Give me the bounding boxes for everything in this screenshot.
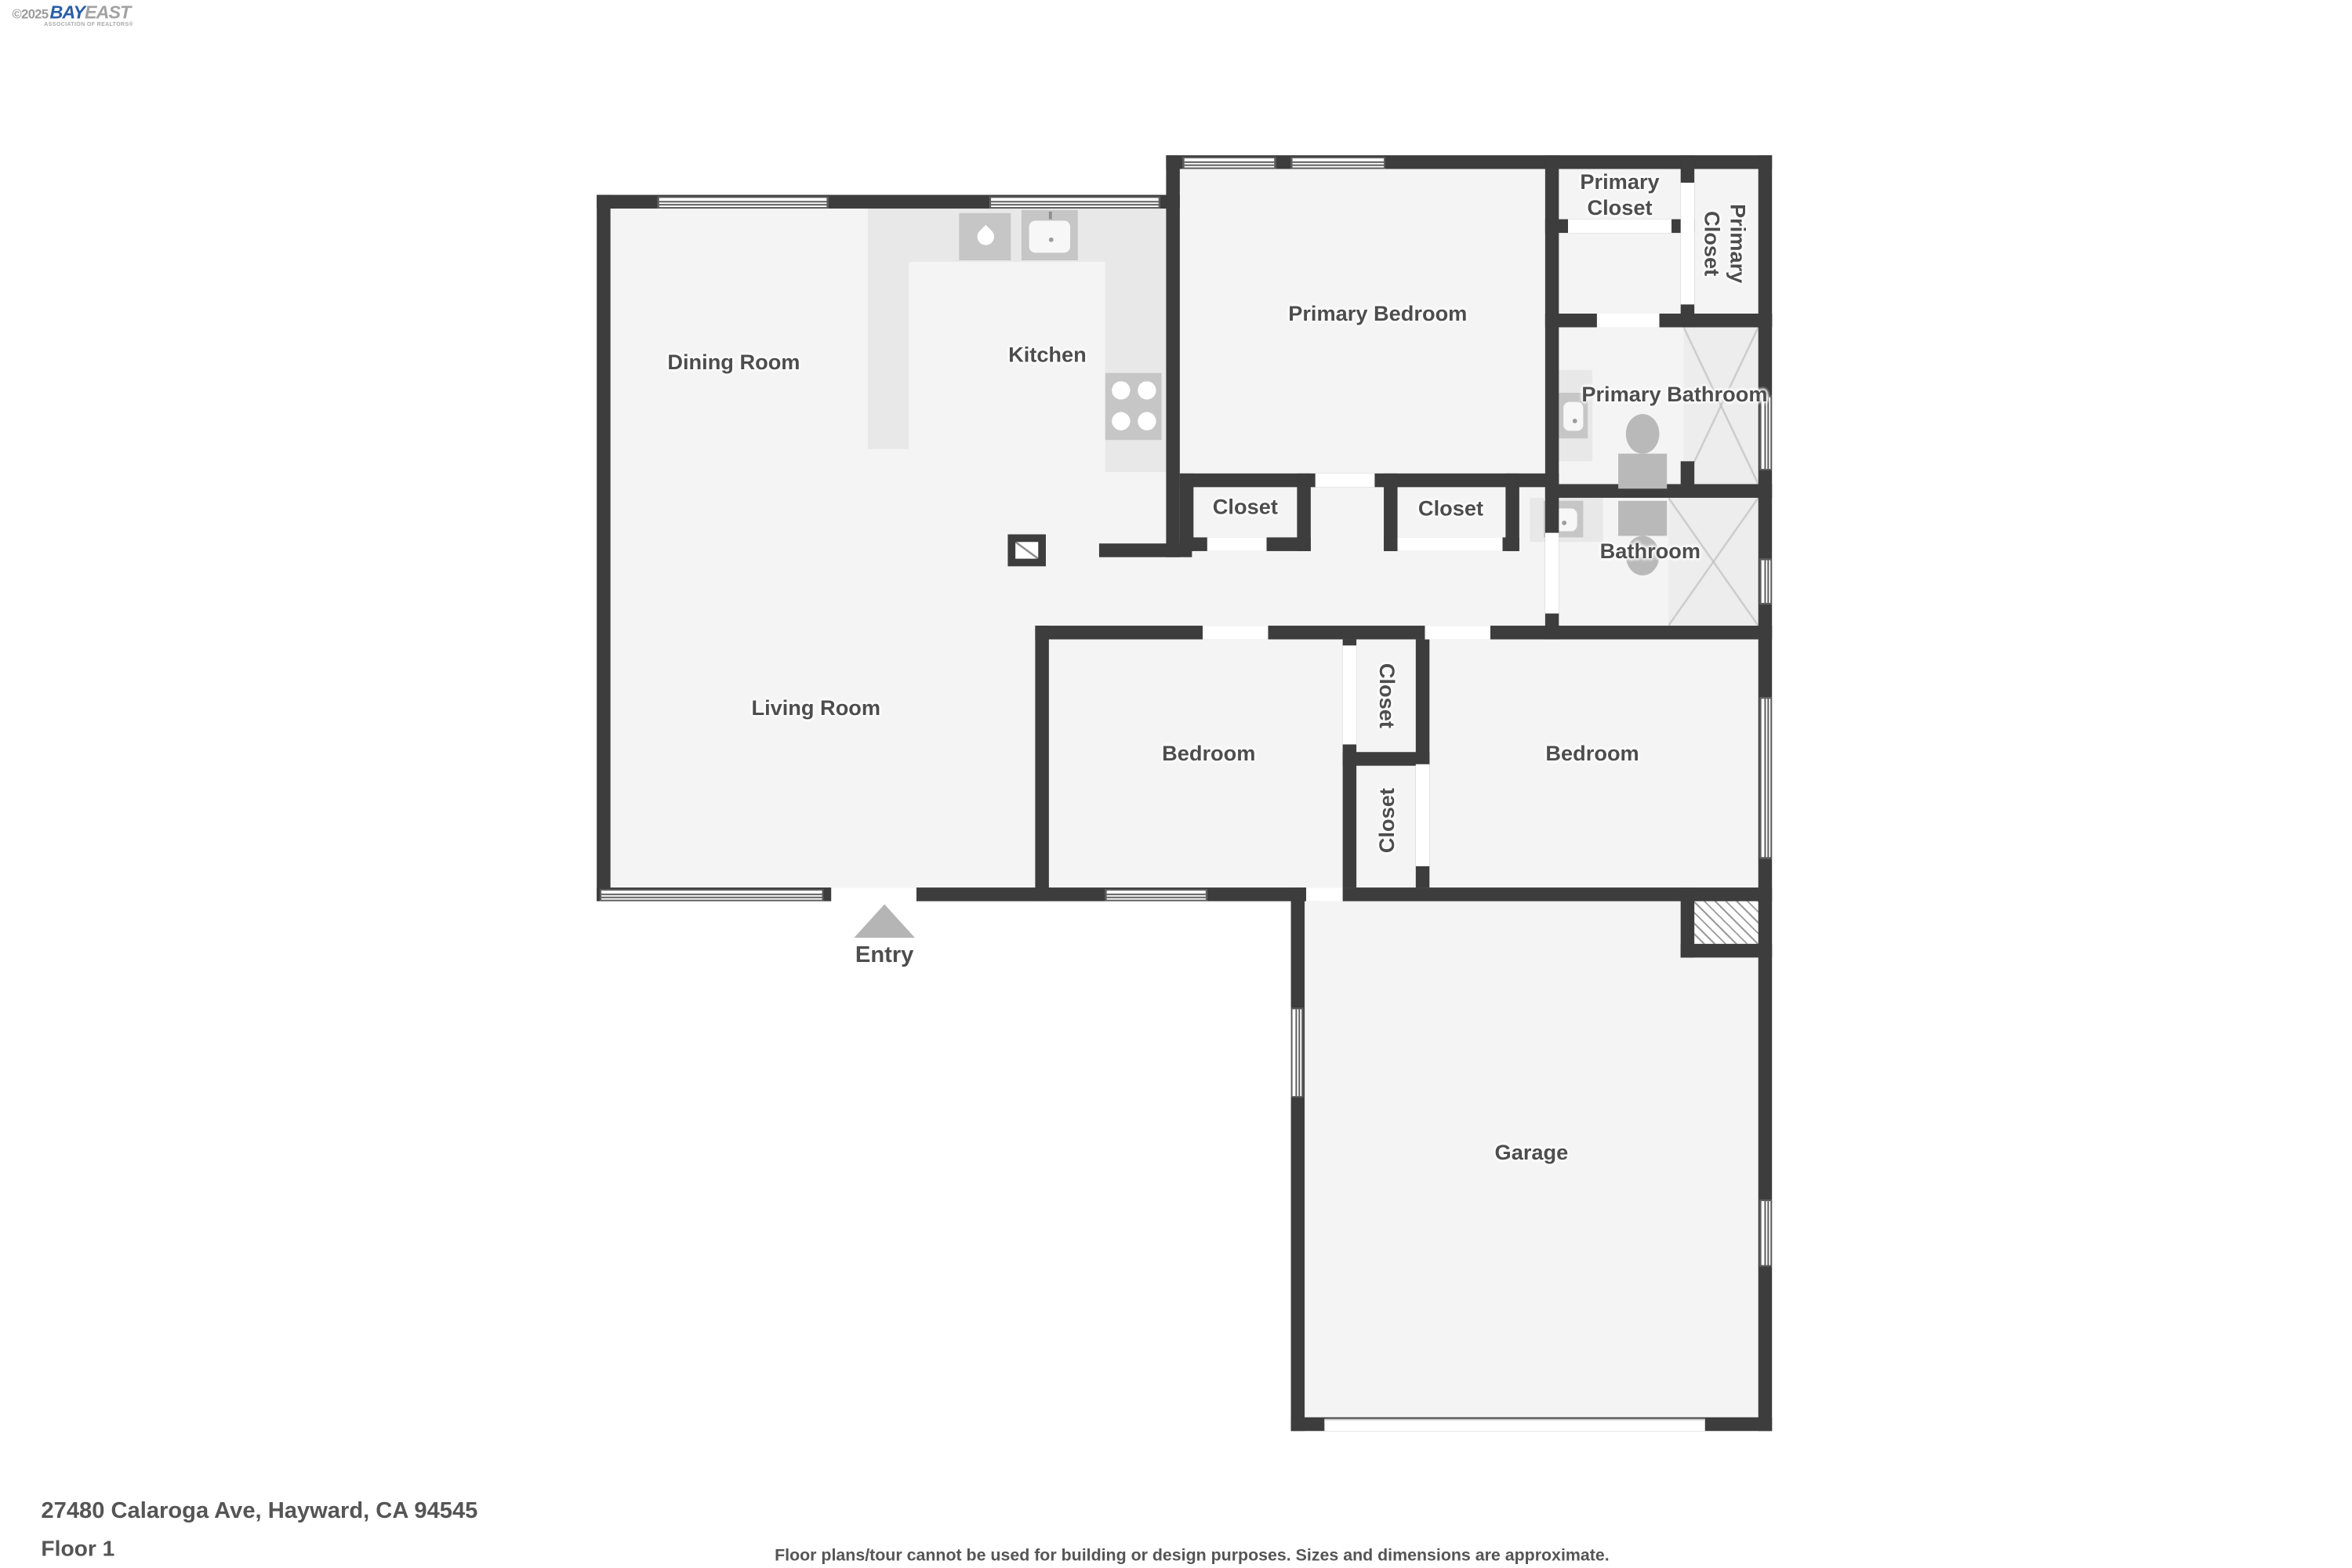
label-entry: Entry (855, 942, 913, 970)
wall-hall-stub (1099, 543, 1192, 557)
window-bedroom-right (1760, 697, 1773, 858)
wall-garage-left (1291, 887, 1305, 1431)
window-garage-left (1291, 1007, 1304, 1098)
stove-icon (1105, 373, 1162, 440)
door-bedroom-left (1203, 626, 1268, 639)
garage-door (1324, 1419, 1704, 1432)
label-bedroom-closet-bottom: Closet (1374, 788, 1400, 853)
water-heater-hatch-icon (1694, 902, 1759, 944)
bath-toilet-tank-icon (1618, 501, 1667, 536)
label-garage: Garage (1495, 1140, 1569, 1166)
wall-bedroom1-left (1035, 626, 1048, 901)
wall-hall-bottom (1035, 626, 1772, 639)
dishwasher-icon (959, 213, 1011, 260)
window-primary-bedroom-1 (1183, 157, 1276, 169)
label-primary-closet-side: Primary Closet (1699, 194, 1750, 294)
kitchen-sink-icon (1022, 210, 1078, 260)
window-dining (658, 196, 828, 209)
logo-brand-east: EAST (85, 3, 130, 21)
door-primary-closet (1568, 220, 1671, 233)
kitchen-counter-right (1105, 262, 1167, 472)
primary-toilet-bowl-icon (1626, 414, 1660, 453)
wall-kitchen-right (1166, 155, 1179, 557)
sink-drain (1572, 418, 1577, 423)
water-drop-icon (974, 224, 997, 248)
disclaimer-text: Floor plans/tour cannot be used for buil… (775, 1547, 1610, 1565)
label-bedroom-closet-top: Closet (1374, 663, 1400, 728)
door-bedroom-closet-top (1343, 645, 1356, 744)
logo-brand-bay: BAY (49, 3, 85, 21)
wall-primary-closet-divider (1545, 155, 1559, 327)
wall-left-outer (597, 195, 610, 902)
label-kitchen: Kitchen (1008, 342, 1087, 368)
address-text: 27480 Calaroga Ave, Hayward, CA 94545 (41, 1498, 477, 1524)
door-primary-bedroom (1316, 474, 1375, 487)
door-side-closet (1681, 183, 1694, 304)
window-bedroom-left (1105, 889, 1207, 902)
door-hall-closet-right (1398, 537, 1503, 550)
label-primary-bathroom: Primary Bathroom (1581, 382, 1767, 408)
fireplace-icon (1007, 535, 1046, 567)
wall-hatch-bottom (1681, 944, 1773, 957)
label-bathroom: Bathroom (1600, 539, 1700, 564)
label-hall-closet-left: Closet (1213, 494, 1278, 520)
logo-row: ©2025 BAY EAST (13, 3, 133, 21)
label-dining-room: Dining Room (667, 350, 800, 376)
logo-tagline: ASSOCIATION OF REALTORS® (44, 23, 133, 28)
wall-shower-stub (1681, 461, 1694, 485)
wall-garage-top (1291, 887, 1773, 901)
sink-basin (1563, 402, 1584, 431)
entry-arrow-icon (854, 904, 915, 938)
window-bathroom (1760, 559, 1773, 604)
door-entry (831, 887, 916, 901)
label-primary-bedroom: Primary Bedroom (1288, 301, 1467, 327)
door-primary-bath (1597, 314, 1660, 327)
window-kitchen (989, 196, 1160, 209)
label-bedroom-left: Bedroom (1162, 741, 1255, 767)
door-garage (1306, 887, 1343, 901)
door-bedroom-right (1425, 626, 1490, 639)
label-hall-closet-right: Closet (1418, 495, 1483, 521)
sink-faucet (1048, 212, 1051, 220)
sink-basin (1029, 220, 1070, 252)
door-hall-closet-left (1207, 537, 1267, 550)
label-bedroom-right: Bedroom (1545, 741, 1639, 767)
bayeast-logo: ©2025 BAY EAST ASSOCIATION OF REALTORS® (13, 3, 133, 28)
door-bathroom (1545, 533, 1559, 614)
door-bedroom-closet-bottom (1416, 764, 1429, 866)
floorplan-page: ©2025 BAY EAST ASSOCIATION OF REALTORS® (0, 0, 2352, 1568)
window-garage-right (1760, 1200, 1773, 1266)
floor-label: Floor 1 (41, 1537, 114, 1562)
window-living-room (600, 889, 823, 902)
fireplace-inner (1015, 543, 1038, 558)
primary-toilet-tank-icon (1618, 454, 1667, 489)
logo-copyright: ©2025 (13, 8, 49, 21)
window-primary-bedroom-2 (1291, 157, 1385, 169)
label-primary-closet: Primary Closet (1570, 169, 1670, 220)
label-living-room: Living Room (751, 695, 880, 721)
kitchen-counter-left (868, 209, 909, 449)
